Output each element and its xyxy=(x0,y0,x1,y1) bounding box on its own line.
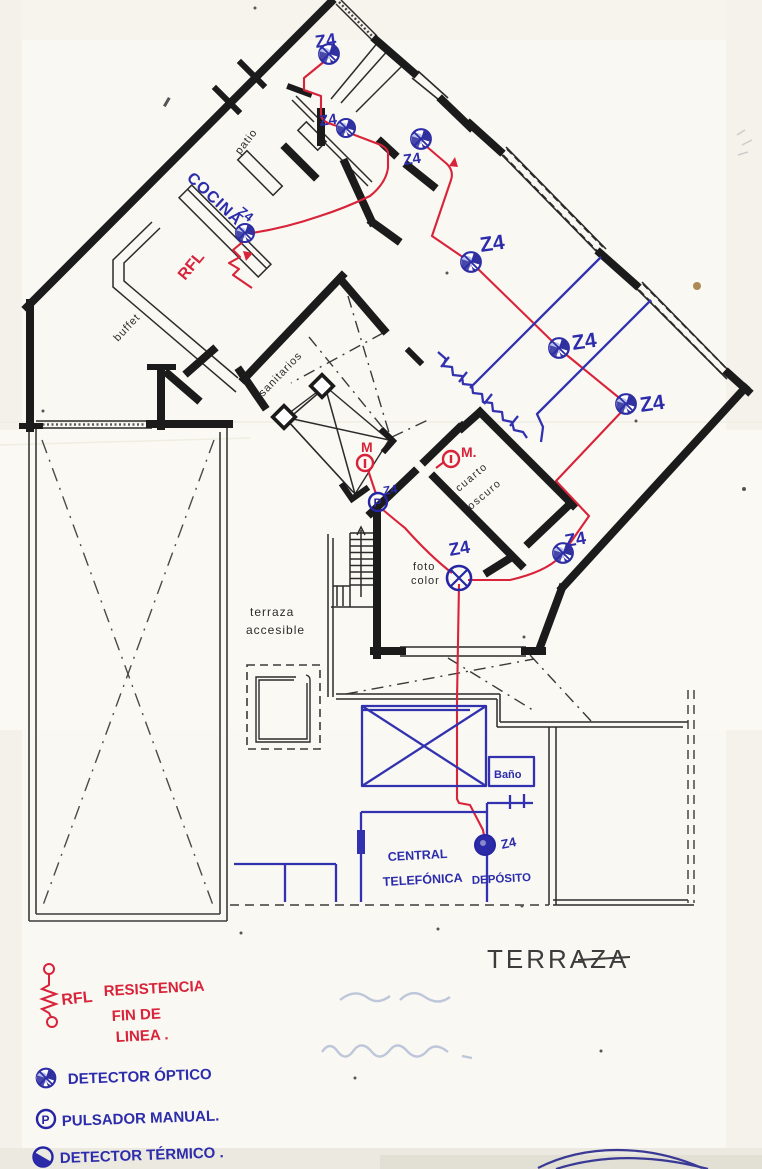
svg-text:Z4: Z4 xyxy=(447,537,471,560)
svg-text:foto: foto xyxy=(413,561,435,573)
svg-text:terraza: terraza xyxy=(250,605,294,619)
svg-text:FIN DE: FIN DE xyxy=(111,1005,161,1025)
svg-text:RFL: RFL xyxy=(61,989,94,1009)
svg-text:M: M xyxy=(361,439,373,455)
svg-text:Z4: Z4 xyxy=(318,111,338,130)
svg-text:Z4: Z4 xyxy=(638,391,666,417)
svg-text:LINEA .: LINEA . xyxy=(115,1026,169,1046)
svg-text:Z4: Z4 xyxy=(570,329,598,355)
svg-text:Z4: Z4 xyxy=(402,150,422,169)
svg-text:M.: M. xyxy=(461,444,477,460)
svg-text:accesible: accesible xyxy=(246,623,305,637)
svg-text:Baño: Baño xyxy=(494,769,522,781)
svg-text:Z4: Z4 xyxy=(478,231,506,257)
svg-text:P: P xyxy=(374,496,382,510)
svg-text:P: P xyxy=(42,1113,50,1127)
svg-text:color: color xyxy=(411,575,440,587)
